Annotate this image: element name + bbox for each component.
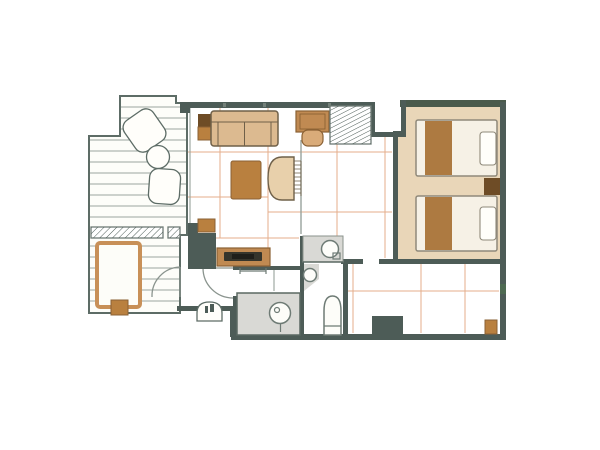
wall-window-tick xyxy=(263,103,266,107)
bed-2-pillow xyxy=(480,207,496,240)
entrance-step xyxy=(197,302,222,321)
wall-corridor-top-right xyxy=(379,259,506,264)
luggage-rack-hatch xyxy=(330,106,371,144)
deck-bench-end-hatch xyxy=(168,227,180,238)
wall-vestibule-bottom xyxy=(370,132,406,137)
bathtub-step xyxy=(111,300,128,315)
wall-window-tick xyxy=(223,103,226,107)
shower-stool xyxy=(270,303,291,324)
wall-right-door-mark xyxy=(500,284,506,294)
bed-1-pillow xyxy=(480,132,496,165)
toilet xyxy=(324,296,341,335)
amenity-bottle xyxy=(205,306,208,313)
floor-plan-svg xyxy=(0,0,600,450)
corridor-closet xyxy=(372,316,403,337)
floor-plan-page xyxy=(0,0,600,450)
corner-basin xyxy=(304,269,317,282)
coffee-table xyxy=(231,161,261,199)
deck-chair-2 xyxy=(148,168,181,205)
wall-bedroom-left xyxy=(393,133,398,261)
deck-round-table xyxy=(147,146,170,169)
desk-chair xyxy=(302,130,323,146)
wall-corner-deck xyxy=(180,102,190,113)
entrance-stool xyxy=(198,219,215,232)
wall-toilet-right xyxy=(343,261,348,337)
washbasin xyxy=(322,241,339,258)
wall-entrance-right xyxy=(230,306,235,337)
washbasin-area xyxy=(303,236,343,262)
tv-screen xyxy=(232,254,254,259)
sofa-side-table xyxy=(198,127,211,140)
wall-top-bedroom xyxy=(400,100,506,107)
corridor-stool xyxy=(485,320,497,334)
amenity-bottle xyxy=(210,304,214,312)
sofa-side-table-top xyxy=(198,114,211,127)
bed-1-runner xyxy=(425,121,452,175)
wall-washroom-top xyxy=(233,266,303,270)
deck-bench-hatch xyxy=(91,227,163,238)
bed-2-runner xyxy=(425,197,452,250)
lounge-chair xyxy=(268,157,294,200)
wall-bedroom-upper-left xyxy=(401,100,406,135)
wall-right xyxy=(500,102,506,340)
nightstand xyxy=(484,178,500,195)
bathtub xyxy=(97,243,140,307)
